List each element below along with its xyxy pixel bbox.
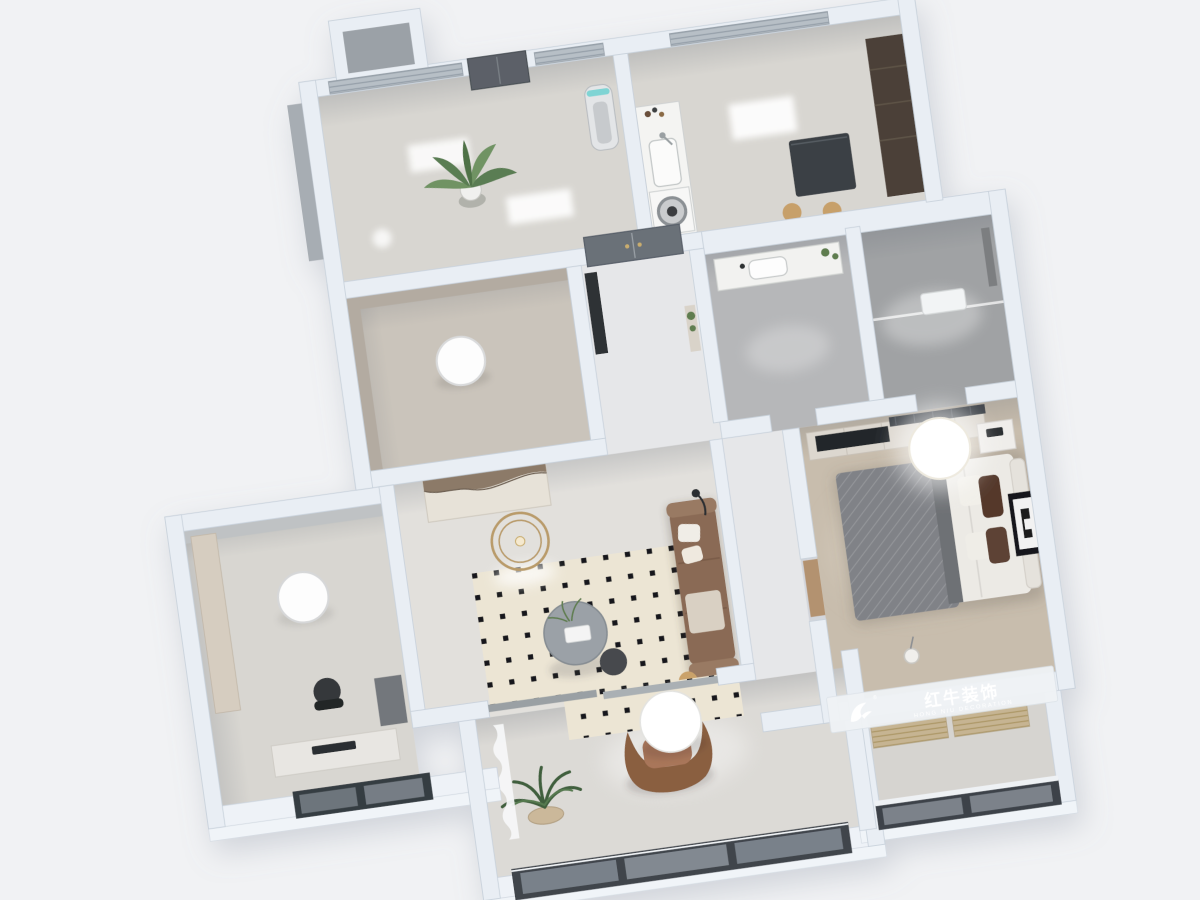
- floorplan-svg: ® 红牛装饰 HONG NIU DECORATION: [0, 0, 1200, 900]
- white-pillow: [678, 524, 700, 542]
- registered-mark: ®: [873, 694, 879, 702]
- render-stage: ® 红牛装饰 HONG NIU DECORATION: [0, 0, 1200, 900]
- throw-blanket: [685, 590, 726, 634]
- tray: [564, 625, 591, 643]
- apartment-model: ® 红牛装饰 HONG NIU DECORATION: [100, 0, 1095, 900]
